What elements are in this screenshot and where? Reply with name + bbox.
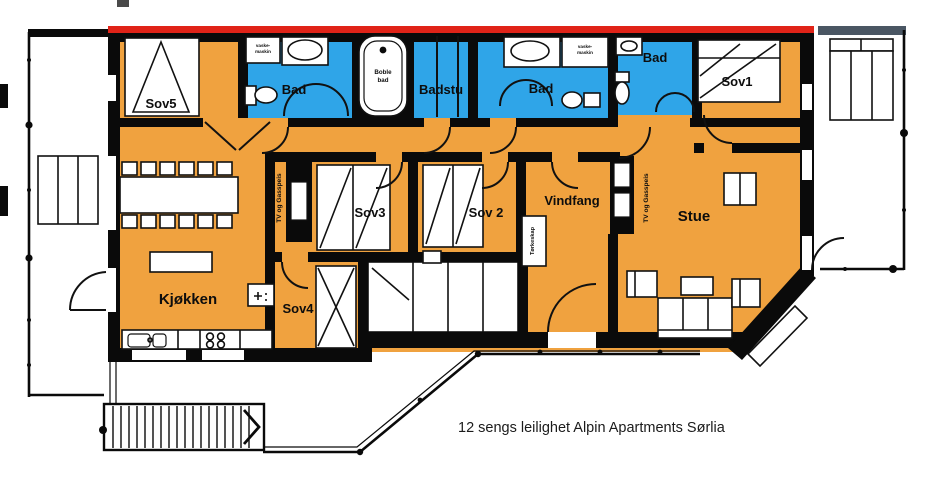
- room-label-sov1: Sov1: [721, 74, 752, 89]
- room-label-sov2: Sov 2: [469, 205, 504, 220]
- bubble-bathtub: [359, 36, 407, 116]
- sauna-floor: [414, 35, 468, 118]
- left-balcony: [25, 29, 108, 397]
- room-label-sov3: Sov3: [354, 205, 385, 220]
- balcony-slate-beam: [818, 26, 906, 35]
- boble-bad-label-line1: Boble: [374, 69, 392, 76]
- storage-room: [368, 262, 518, 332]
- room-label-sov4: Sov4: [282, 301, 314, 316]
- boble-bad-label-line2: bad: [377, 77, 388, 84]
- room-label-badstu: Badstu: [419, 82, 463, 97]
- left-edge-mark-2: [0, 186, 8, 216]
- dining-set: [120, 162, 238, 228]
- room-label-vindfang: Vindfang: [544, 193, 599, 208]
- right-balcony: [820, 30, 908, 273]
- top-edge-notch: [117, 0, 129, 7]
- deck-and-stairs: [99, 350, 700, 456]
- room-label-bad-2: Bad: [529, 81, 554, 96]
- right-balcony-bench: [830, 39, 893, 120]
- washer-label-2-line2: maskin: [577, 50, 593, 55]
- washer-label-2-line1: vaske-: [578, 44, 593, 49]
- room-label-kjokken: Kjøkken: [159, 291, 217, 308]
- bunk-bed-sov4: [316, 266, 356, 348]
- washer-label-1-line2: maskin: [255, 49, 271, 54]
- room-label-stue: Stue: [678, 208, 711, 225]
- caption: 12 sengs leilighet Alpin Apartments Sørl…: [458, 420, 726, 436]
- tv-gasspeis-label-right: TV og Gasspeis: [643, 173, 650, 223]
- red-roof-line: [108, 26, 814, 33]
- staircase: [99, 404, 264, 450]
- floor-plan-image: Sov5 Bad Badstu Bad Bad Sov1 Sov3 Sov 2 …: [0, 0, 940, 491]
- left-balcony-bench: [38, 156, 98, 224]
- floor-plan-svg: Sov5 Bad Badstu Bad Bad Sov1 Sov3 Sov 2 …: [0, 0, 940, 491]
- room-label-sov5: Sov5: [145, 96, 176, 111]
- bed-sov1: [698, 40, 780, 102]
- room-label-bad-3: Bad: [643, 50, 668, 65]
- washer-label-1-line1: vaske-: [256, 43, 271, 48]
- room-label-bad-1: Bad: [282, 82, 307, 97]
- tv-gasspeis-label-left: TV og Gasspeis: [276, 173, 283, 223]
- torkeskap-label: Tørkeskap: [530, 226, 536, 255]
- left-edge-mark-1: [0, 84, 8, 108]
